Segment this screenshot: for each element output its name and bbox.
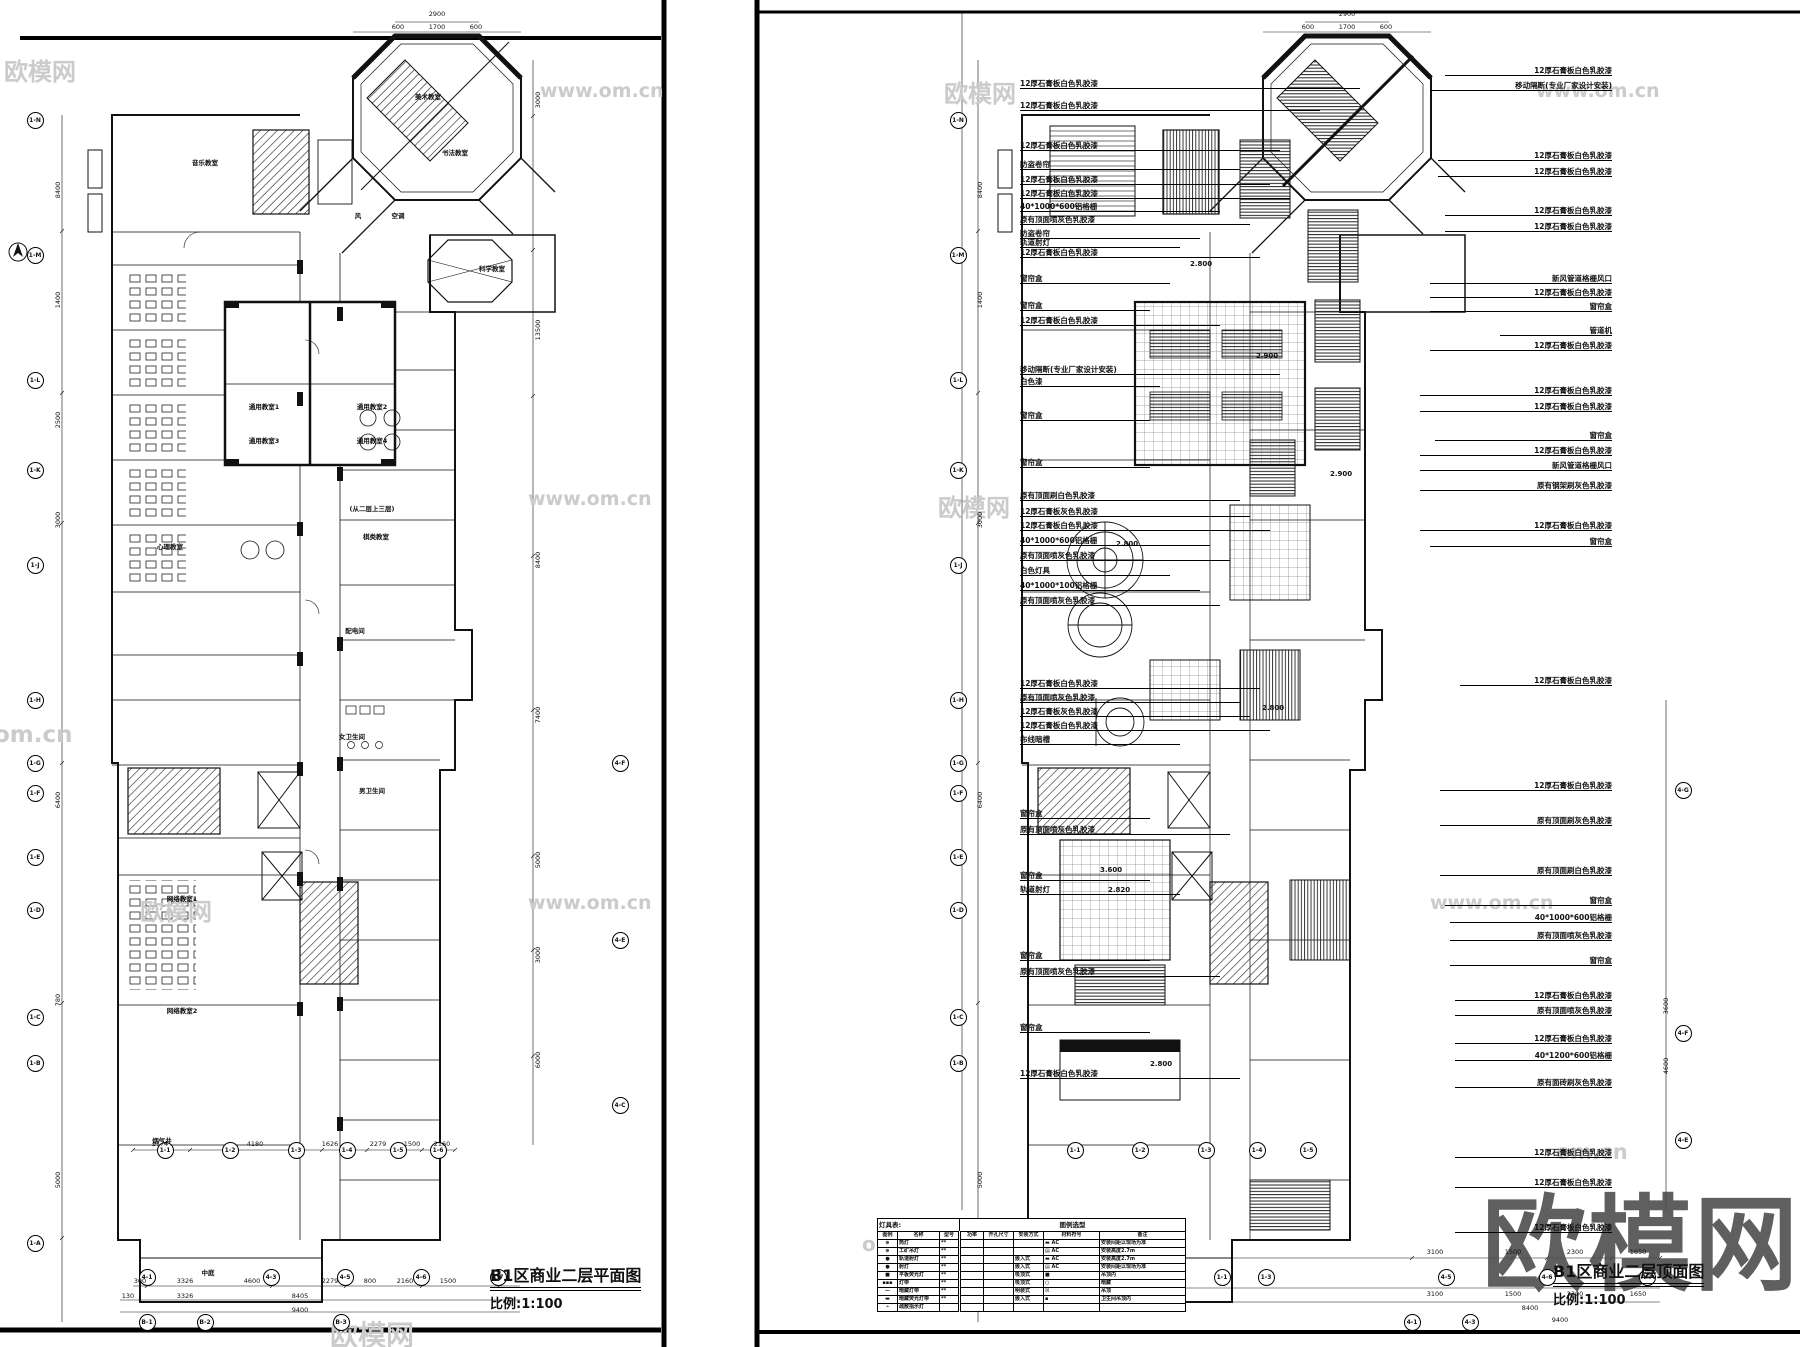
watermark: 欧模网	[938, 488, 1010, 523]
legend-cell	[960, 1240, 984, 1248]
dimension-label: 2160	[434, 1140, 451, 1148]
legend-cell	[940, 1304, 960, 1312]
legend-subtitle: 图例选型	[960, 1219, 1186, 1232]
legend-cell	[1044, 1304, 1100, 1312]
legend-cell	[984, 1264, 1014, 1272]
ceiling-annotation: 原有顶面喷灰色乳胶漆	[1020, 967, 1220, 977]
ceiling-annotation: 40*1000*600铝格栅	[1020, 202, 1220, 212]
legend-cell: 轨道射灯	[898, 1256, 940, 1264]
grid-bubble: 1-F	[27, 785, 44, 802]
ceiling-annotation: 12厚石膏板白色乳胶漆	[1455, 1148, 1612, 1158]
grid-bubble: 1-K	[950, 462, 967, 479]
legend-cell: ▬ AC	[1044, 1240, 1100, 1248]
grid-bubble: 1-L	[950, 372, 967, 389]
ceiling-annotation: 12厚石膏板白色乳胶漆	[1420, 402, 1612, 412]
legend-symbol: ●	[878, 1264, 898, 1272]
watermark: 欧模网	[4, 52, 76, 87]
dimension-label: 1700	[1339, 23, 1356, 31]
grid-bubble: 4-6	[413, 1269, 430, 1286]
grid-bubble: 4-5	[1438, 1269, 1455, 1286]
ceiling-annotation: 窗帘盒	[1020, 274, 1170, 284]
ceiling-annotation: 原有顶面喷灰色乳胶漆	[1020, 596, 1220, 606]
dimension-label: 2279	[322, 1277, 339, 1285]
legend-cell	[960, 1280, 984, 1288]
ceiling-annotation: 轨道射灯	[1020, 885, 1180, 895]
ceiling-annotation: 防盗卷帘	[1020, 160, 1240, 170]
dimension-label: 1500	[1505, 1248, 1522, 1256]
ceiling-annotation: 原有钢架刷灰色乳胶漆	[1420, 481, 1612, 491]
ceiling-annotation: 轨道射灯	[1020, 238, 1180, 248]
grid-bubble: 1-D	[27, 902, 44, 919]
legend-cell	[960, 1288, 984, 1296]
grid-bubble: 4-5	[337, 1269, 354, 1286]
ceiling-annotation: 40*1000*100铝格栅	[1020, 581, 1200, 591]
legend-header-cell: 功率	[960, 1232, 984, 1240]
dimension-label: 2160	[397, 1277, 414, 1285]
legend-cell: 吸顶式	[1014, 1272, 1044, 1280]
room-label: 空调	[392, 210, 405, 220]
dimension-label: 130	[122, 1292, 134, 1300]
grid-bubble: 1-E	[27, 849, 44, 866]
dimension-label: 300	[134, 1277, 146, 1285]
left-sheet-scale: 比例:1:100	[490, 1293, 641, 1312]
ceiling-annotation: 新风管道格栅风口	[1430, 274, 1612, 284]
cad-screenshot: 欧模网www.om.cn欧模网www.om.cnwww.om.cn欧模网om.c…	[0, 0, 1800, 1347]
watermark: www.om.cn	[540, 80, 664, 102]
dimension-label: 5000	[534, 852, 542, 869]
ceiling-annotation: 12厚石膏板白色乳胶漆	[1460, 676, 1612, 686]
legend-cell	[1100, 1304, 1186, 1312]
legend-row: ●轨道射灯**嵌入式▬ AC安装高度2.7m	[878, 1256, 1186, 1264]
ceiling-annotation: 12厚石膏板白色乳胶漆	[1020, 721, 1270, 731]
legend-cell	[984, 1272, 1014, 1280]
grid-bubble: 4-G	[1675, 782, 1692, 799]
ceiling-annotation: 12厚石膏板白色乳胶漆	[1440, 781, 1612, 791]
legend-cell: 吊顶	[1100, 1288, 1186, 1296]
ceiling-annotation: 窗帘盒	[1430, 302, 1612, 312]
ceiling-annotation: 白色漆	[1020, 377, 1160, 387]
text-overlay: 欧模网www.om.cn欧模网www.om.cnwww.om.cn欧模网om.c…	[0, 0, 1800, 1347]
dimension-label: 8400	[534, 552, 542, 569]
ceiling-annotation: 原有顶面喷灰色乳胶漆	[1455, 1006, 1612, 1016]
legend-header-cell: 备注	[1100, 1232, 1186, 1240]
grid-bubble: 1-N	[27, 112, 44, 129]
ceiling-annotation: 12厚石膏板白色乳胶漆	[1420, 446, 1612, 456]
legend-cell	[960, 1248, 984, 1256]
dimension-label: 3000	[534, 92, 542, 109]
left-sheet-title: B1区商业二层平面图	[490, 1262, 641, 1291]
dimension-label: 13500	[534, 320, 542, 341]
dimension-label: 4600	[244, 1277, 261, 1285]
dimension-label: 600	[470, 23, 482, 31]
legend-row: ▬暗藏荧光灯带**嵌入式▪卫生间吊顶内	[878, 1296, 1186, 1304]
grid-bubble: B-2	[197, 1314, 214, 1331]
legend-symbol: —	[878, 1288, 898, 1296]
legend-cell	[1014, 1248, 1044, 1256]
ceiling-annotation: 12厚石膏板白色乳胶漆	[1020, 175, 1270, 185]
ceiling-annotation: 12厚石膏板白色乳胶漆	[1020, 1069, 1240, 1079]
grid-bubble: 1-1	[1214, 1269, 1231, 1286]
dimension-label: 8400	[54, 182, 62, 199]
dimension-label: 3100	[1427, 1248, 1444, 1256]
dimension-label: 1500	[404, 1140, 421, 1148]
legend-cell: 嵌入式	[1014, 1264, 1044, 1272]
ceiling-annotation: 窗帘盒	[1450, 956, 1612, 966]
dimension-label: 6000	[534, 1052, 542, 1069]
room-label: 音乐教室	[192, 157, 218, 167]
grid-bubble: 1-B	[950, 1055, 967, 1072]
dimension-label: 3000	[976, 512, 984, 529]
legend-cell: ▤ AC	[1044, 1248, 1100, 1256]
ceiling-annotation: 布线暗槽	[1020, 735, 1180, 745]
right-sheet-title: B1区商业二层顶面图	[1553, 1258, 1704, 1287]
grid-bubble: 1-C	[950, 1009, 967, 1026]
dimension-label: 9400	[1552, 1316, 1569, 1324]
dimension-label: 3000	[534, 947, 542, 964]
ceiling-annotation: 12厚石膏板白色乳胶漆	[1020, 679, 1260, 689]
legend-cell	[984, 1240, 1014, 1248]
legend-cell	[960, 1264, 984, 1272]
grid-bubble: 1-G	[27, 755, 44, 772]
legend-cell: 暗藏	[1100, 1280, 1186, 1288]
legend-header-cell: 名称	[898, 1232, 940, 1240]
legend-cell: 平板荧光灯	[898, 1272, 940, 1280]
ceiling-annotation: 窗帘盒	[1430, 537, 1612, 547]
ceiling-annotation: 12厚石膏板白色乳胶漆	[1455, 1178, 1612, 1188]
room-label: 风	[355, 210, 362, 220]
legend-row: ●射灯**嵌入式▤ AC安装间距以现场为准	[878, 1264, 1186, 1272]
room-label: 科学教室	[479, 263, 505, 273]
ceiling-annotation: 原有顶面喷灰色乳胶漆	[1020, 693, 1240, 703]
grid-bubble: 4-1	[1404, 1314, 1421, 1331]
dimension-label: 8400	[1522, 1304, 1539, 1312]
grid-bubble: 4-E	[612, 932, 629, 949]
ceiling-annotation: 12厚石膏板白色乳胶漆	[1455, 991, 1612, 1001]
legend-cell	[984, 1304, 1014, 1312]
dimension-label: 8400	[976, 182, 984, 199]
grid-bubble: 4-E	[1675, 1132, 1692, 1149]
legend-cell: ▤ AC	[1044, 1264, 1100, 1272]
ceiling-annotation: 原有顶面刷灰色乳胶漆	[1440, 816, 1612, 826]
dimension-label: 3000	[54, 512, 62, 529]
legend-cell: 嵌入式	[1014, 1296, 1044, 1304]
legend-cell	[984, 1256, 1014, 1264]
grid-bubble: 1-3	[288, 1142, 305, 1159]
ceiling-annotation: 原有顶面刷白色乳胶漆	[1020, 491, 1240, 501]
ceiling-annotation: 窗帘盒	[1435, 431, 1612, 441]
ceiling-annotation: 12厚石膏板白色乳胶漆	[1020, 521, 1270, 531]
dimension-label: 1700	[429, 23, 446, 31]
legend-row: ⊕工矿吊灯**▤ AC安装高度2.7m	[878, 1248, 1186, 1256]
legend-title: 灯具表:	[878, 1219, 960, 1232]
grid-bubble: 1-5	[1300, 1142, 1317, 1159]
grid-bubble: 1-K	[27, 462, 44, 479]
legend-cell: 明装式	[1014, 1288, 1044, 1296]
grid-bubble: 1-G	[950, 755, 967, 772]
legend-row: ➛疏散指示灯	[878, 1304, 1186, 1312]
legend-cell: ▪	[1044, 1296, 1100, 1304]
grid-bubble: 1-3	[1258, 1269, 1275, 1286]
legend-row: ⊕筒灯**▬ AC安装间距以现场为准	[878, 1240, 1186, 1248]
grid-bubble: 1-C	[27, 1009, 44, 1026]
dimension-label: 600	[1302, 23, 1314, 31]
room-label: 中庭	[202, 1267, 215, 1277]
ceiling-annotation: 12厚石膏板白色乳胶漆	[1445, 222, 1612, 232]
legend-cell: **	[940, 1240, 960, 1248]
grid-bubble: 1-4	[339, 1142, 356, 1159]
room-label: 配电间	[345, 625, 365, 635]
dimension-label: 2279	[370, 1140, 387, 1148]
dimension-label: 1626	[322, 1140, 339, 1148]
grid-bubble: 1-B	[27, 1055, 44, 1072]
dimension-label: 5000	[54, 1172, 62, 1189]
ceiling-annotation: 12厚石膏板白色乳胶漆	[1445, 206, 1612, 216]
ceiling-annotation: 12厚石膏板灰色乳胶漆	[1020, 507, 1250, 517]
left-title-block: B1区商业二层平面图 比例:1:100	[490, 1262, 641, 1312]
ceiling-annotation: 窗帘盒	[1020, 871, 1150, 881]
dimension-label: 3600	[1662, 998, 1670, 1015]
grid-bubble: B-1	[139, 1314, 156, 1331]
dimension-label: 1500	[440, 1277, 457, 1285]
ceiling-annotation: 40*1200*600铝格栅	[1455, 1051, 1612, 1061]
ceiling-annotation: 管道机	[1500, 326, 1612, 336]
room-label: 男卫生间	[359, 785, 385, 795]
grid-bubble: 4-3	[263, 1269, 280, 1286]
grid-bubble: 1-1	[1067, 1142, 1084, 1159]
legend-cell: 安装间距以现场为准	[1100, 1240, 1186, 1248]
legend-symbol: ●	[878, 1256, 898, 1264]
room-label: 心理教室	[157, 541, 183, 551]
dimension-label: 780	[54, 994, 62, 1006]
dimension-label: 600	[1380, 23, 1392, 31]
legend-cell: 安装间距以现场为准	[1100, 1264, 1186, 1272]
ceiling-annotation: 窗帘盒	[1445, 896, 1612, 906]
room-label: 棋类教室	[363, 531, 389, 541]
dimension-label: 5000	[976, 1172, 984, 1189]
ceiling-annotation: 12厚石膏板白色乳胶漆	[1420, 386, 1612, 396]
room-label: 通用教室4	[357, 435, 388, 445]
legend-header-cell: 开孔尺寸	[984, 1232, 1014, 1240]
ceiling-annotation: 12厚石膏板白色乳胶漆	[1420, 521, 1612, 531]
dimension-label: 1400	[976, 292, 984, 309]
grid-bubble: 4-3	[1462, 1314, 1479, 1331]
dimension-label: 6400	[976, 792, 984, 809]
ceiling-annotation: 原有顶面刷白色乳胶漆	[1440, 866, 1612, 876]
room-label: 烟气井	[152, 1135, 172, 1145]
legend-cell	[960, 1256, 984, 1264]
legend-cell: ☒	[1044, 1288, 1100, 1296]
legend-cell: 暗藏灯带	[898, 1288, 940, 1296]
ceiling-annotation: 原有顶面喷灰色乳胶漆	[1020, 551, 1230, 561]
dimension-label: 2900	[1339, 10, 1356, 18]
watermark: www.om.cn	[528, 488, 652, 510]
dimension-label: 6400	[54, 792, 62, 809]
legend-cell: 吸顶式	[1014, 1280, 1044, 1288]
legend-cell: 灯带	[898, 1280, 940, 1288]
ceiling-annotation: 原有顶面喷灰色乳胶漆	[1020, 825, 1230, 835]
legend-cell: **	[940, 1256, 960, 1264]
legend-cell: ○	[1044, 1280, 1100, 1288]
legend-header-cell: 型号	[940, 1232, 960, 1240]
grid-bubble: B-3	[333, 1314, 350, 1331]
ceiling-height-label: 2.900	[1256, 352, 1278, 360]
room-label: 通用教室2	[357, 401, 388, 411]
legend-header-cell: 材料符号	[1044, 1232, 1100, 1240]
dimension-label: 1400	[54, 292, 62, 309]
dimension-label: 800	[364, 1277, 376, 1285]
dimension-label: 1500	[1505, 1290, 1522, 1298]
legend-cell	[960, 1272, 984, 1280]
legend-cell	[1014, 1240, 1044, 1248]
legend-header-row: 图例名称型号功率开孔尺寸安装方式材料符号备注	[878, 1232, 1186, 1240]
ceiling-annotation: 12厚石膏板白色乳胶漆	[1020, 316, 1220, 326]
legend-row: —暗藏灯带**明装式☒吊顶	[878, 1288, 1186, 1296]
room-label: 网络教室2	[167, 1005, 198, 1015]
legend-cell	[984, 1280, 1014, 1288]
legend-cell: 嵌入式	[1014, 1256, 1044, 1264]
room-label: 美术教室	[415, 91, 441, 101]
grid-bubble: 1-N	[950, 112, 967, 129]
ceiling-annotation: 白色灯具	[1020, 566, 1170, 576]
dimension-label: 600	[392, 23, 404, 31]
ceiling-annotation: 新风管道格栅风口	[1420, 461, 1612, 471]
legend-cell	[1014, 1304, 1044, 1312]
grid-bubble: 1-2	[1132, 1142, 1149, 1159]
ceiling-annotation: 12厚石膏板白色乳胶漆	[1455, 1034, 1612, 1044]
legend-cell: 吊顶内	[1100, 1272, 1186, 1280]
legend-cell: ▬ AC	[1044, 1256, 1100, 1264]
room-label: 通用教室1	[249, 401, 280, 411]
lighting-legend-table: 灯具表: 图例选型 图例名称型号功率开孔尺寸安装方式材料符号备注 ⊕筒灯**▬ …	[877, 1218, 1186, 1312]
legend-cell	[960, 1304, 984, 1312]
ceiling-annotation: 12厚石膏板白色乳胶漆	[1455, 1223, 1612, 1233]
legend-cell: 暗藏荧光灯带	[898, 1296, 940, 1304]
dimension-label: 8405	[292, 1292, 309, 1300]
room-label: 女卫生间	[339, 731, 365, 741]
ceiling-annotation: 12厚石膏板白色乳胶漆	[1020, 189, 1290, 199]
grid-bubble: 4-C	[612, 1097, 629, 1114]
ceiling-annotation: 12厚石膏板白色乳胶漆	[1020, 248, 1260, 258]
grid-bubble: 1-3	[1198, 1142, 1215, 1159]
ceiling-annotation: 原有顶面喷灰色乳胶漆	[1450, 931, 1612, 941]
legend-cell: ■	[1044, 1272, 1100, 1280]
legend-header-cell: 安装方式	[1014, 1232, 1044, 1240]
legend-cell: **	[940, 1264, 960, 1272]
legend-cell: 卫生间吊顶内	[1100, 1296, 1186, 1304]
ceiling-annotation: 12厚石膏板白色乳胶漆	[1445, 66, 1612, 76]
legend-cell	[984, 1248, 1014, 1256]
dimension-label: 1650	[1630, 1248, 1647, 1256]
ceiling-annotation: 12厚石膏板白色乳胶漆	[1430, 341, 1612, 351]
dimension-label: 4600	[1662, 1058, 1670, 1075]
legend-cell: 安装高度2.7m	[1100, 1248, 1186, 1256]
legend-cell: **	[940, 1288, 960, 1296]
grid-bubble: 1-E	[950, 849, 967, 866]
watermark: www.om.cn	[528, 892, 652, 914]
ceiling-annotation: 原有顶面喷灰色乳胶漆	[1020, 215, 1250, 225]
legend-row: ▪▪▪灯带**吸顶式○暗藏	[878, 1280, 1186, 1288]
ceiling-annotation: 原有面砖刷灰色乳胶漆	[1455, 1078, 1612, 1088]
grid-bubble: 4-F	[1675, 1025, 1692, 1042]
legend-cell	[984, 1296, 1014, 1304]
ceiling-annotation: 12厚石膏板白色乳胶漆	[1020, 101, 1320, 111]
right-title-block: B1区商业二层顶面图 比例:1:100	[1553, 1258, 1704, 1308]
ceiling-annotation: 12厚石膏板白色乳胶漆	[1438, 167, 1612, 177]
legend-cell: 疏散指示灯	[898, 1304, 940, 1312]
ceiling-height-label: 2.800	[1150, 1060, 1172, 1068]
grid-bubble: 1-M	[950, 247, 967, 264]
grid-bubble: 1-L	[27, 372, 44, 389]
ceiling-annotation: 移动隔断(专业厂家设计安装)	[1020, 365, 1280, 375]
right-sheet-scale: 比例:1:100	[1553, 1289, 1704, 1308]
dimension-label: 9400	[292, 1306, 309, 1314]
legend-symbol: ■	[878, 1272, 898, 1280]
grid-bubble: 1-F	[950, 785, 967, 802]
dimension-label: 2900	[429, 10, 446, 18]
legend-symbol: ➛	[878, 1304, 898, 1312]
ceiling-annotation: 40*1000*600铝格栅	[1450, 913, 1612, 923]
legend-symbol: ▪▪▪	[878, 1280, 898, 1288]
ceiling-annotation: 12厚石膏板白色乳胶漆	[1020, 79, 1360, 89]
ceiling-height-label: 2.800	[1190, 260, 1212, 268]
grid-bubble: 1-H	[27, 692, 44, 709]
legend-cell: 工矿吊灯	[898, 1248, 940, 1256]
legend-cell: **	[940, 1272, 960, 1280]
ceiling-height-label: 2.800	[1262, 704, 1284, 712]
dimension-label: 3100	[1427, 1290, 1444, 1298]
ceiling-annotation: 窗帘盒	[1020, 1023, 1150, 1033]
room-label: 网络教室1	[167, 893, 198, 903]
watermark: 欧模网	[944, 74, 1016, 109]
ceiling-annotation: 窗帘盒	[1020, 809, 1150, 819]
ceiling-annotation: 12厚石膏板白色乳胶漆	[1430, 288, 1612, 298]
legend-cell	[960, 1296, 984, 1304]
legend-cell: 安装高度2.7m	[1100, 1256, 1186, 1264]
grid-bubble: 1-A	[27, 1235, 44, 1252]
grid-bubble: 1-4	[1249, 1142, 1266, 1159]
ceiling-annotation: 40*1000*600铝格栅	[1020, 536, 1210, 546]
dimension-label: 7400	[534, 707, 542, 724]
dimension-label: 3326	[177, 1292, 194, 1300]
legend-row: ■平板荧光灯**吸顶式■吊顶内	[878, 1272, 1186, 1280]
watermark: om.cn	[0, 722, 73, 748]
grid-bubble: 1-J	[950, 557, 967, 574]
ceiling-annotation: 窗帘盒	[1020, 301, 1150, 311]
legend-cell: **	[940, 1296, 960, 1304]
room-label: 书法教室	[442, 147, 468, 157]
legend-symbol: ⊕	[878, 1240, 898, 1248]
legend-cell: 射灯	[898, 1264, 940, 1272]
ceiling-annotation: 12厚石膏板灰色乳胶漆	[1020, 707, 1250, 717]
legend-symbol: ⊕	[878, 1248, 898, 1256]
ceiling-height-label: 2.900	[1330, 470, 1352, 478]
room-label: (从二层上三层)	[350, 503, 395, 513]
dimension-label: 2500	[54, 412, 62, 429]
grid-bubble: 1-J	[27, 557, 44, 574]
dimension-label: 4180	[247, 1140, 264, 1148]
legend-header-cell: 图例	[878, 1232, 898, 1240]
grid-bubble: 4-F	[612, 755, 629, 772]
legend-symbol: ▬	[878, 1296, 898, 1304]
room-label: 通用教室3	[249, 435, 280, 445]
legend-cell	[984, 1288, 1014, 1296]
ceiling-annotation: 窗帘盒	[1020, 411, 1150, 421]
ceiling-annotation: 12厚石膏板白色乳胶漆	[1438, 151, 1612, 161]
legend-cell: 筒灯	[898, 1240, 940, 1248]
grid-bubble: 1-2	[222, 1142, 239, 1159]
grid-bubble: 1-M	[27, 247, 44, 264]
ceiling-annotation: 移动隔断(专业厂家设计安装)	[1430, 81, 1612, 91]
